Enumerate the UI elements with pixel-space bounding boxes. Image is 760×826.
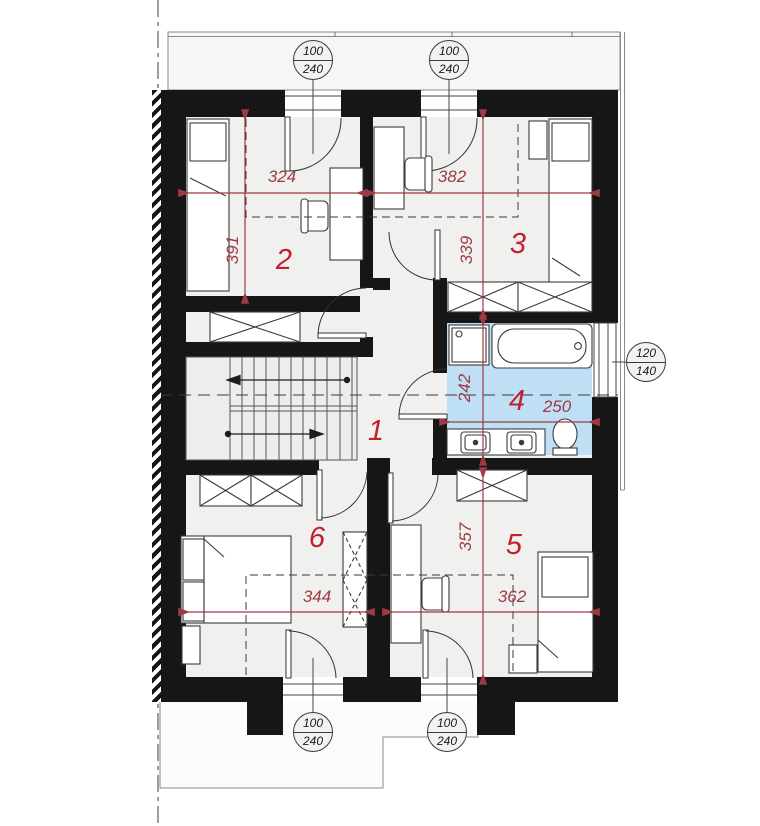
callout-height: 240	[430, 63, 468, 75]
callout-width: 100	[294, 717, 332, 729]
callout-divider	[428, 732, 466, 733]
wardrobe-room6-a	[200, 475, 251, 506]
callout-window-right: 120 140	[626, 342, 666, 382]
callout-divider	[294, 732, 332, 733]
callout-window-top-left: 100 240	[293, 40, 333, 80]
wardrobe-room5	[457, 470, 527, 501]
toilet	[553, 419, 577, 455]
sink-counter	[447, 429, 545, 455]
callout-divider	[294, 60, 332, 61]
cabinet-room6	[343, 532, 367, 627]
wall-serration	[152, 90, 161, 702]
wardrobe-hall	[210, 312, 300, 342]
callout-width: 100	[428, 717, 466, 729]
callout-width: 100	[294, 45, 332, 57]
callout-width: 120	[627, 347, 665, 359]
callout-height: 240	[294, 735, 332, 747]
callout-height: 240	[294, 63, 332, 75]
stairs	[186, 357, 357, 460]
callout-divider	[627, 362, 665, 363]
callout-height: 140	[627, 365, 665, 377]
callout-width: 100	[430, 45, 468, 57]
bathtub	[492, 324, 592, 368]
callout-height: 240	[428, 735, 466, 747]
floor-plan-drawing	[0, 0, 760, 826]
bed-room2	[187, 119, 229, 291]
callout-divider	[430, 60, 468, 61]
callout-window-bottom-left: 100 240	[293, 712, 333, 752]
callout-window-top-right: 100 240	[429, 40, 469, 80]
floor-plan-page: 1 2 3 4 5 6 324 382 391 339 242 250 344 …	[0, 0, 760, 826]
wardrobe-room3-b	[518, 282, 592, 312]
callout-window-bottom-right: 100 240	[427, 712, 467, 752]
wardrobe-room6-b	[251, 475, 302, 506]
